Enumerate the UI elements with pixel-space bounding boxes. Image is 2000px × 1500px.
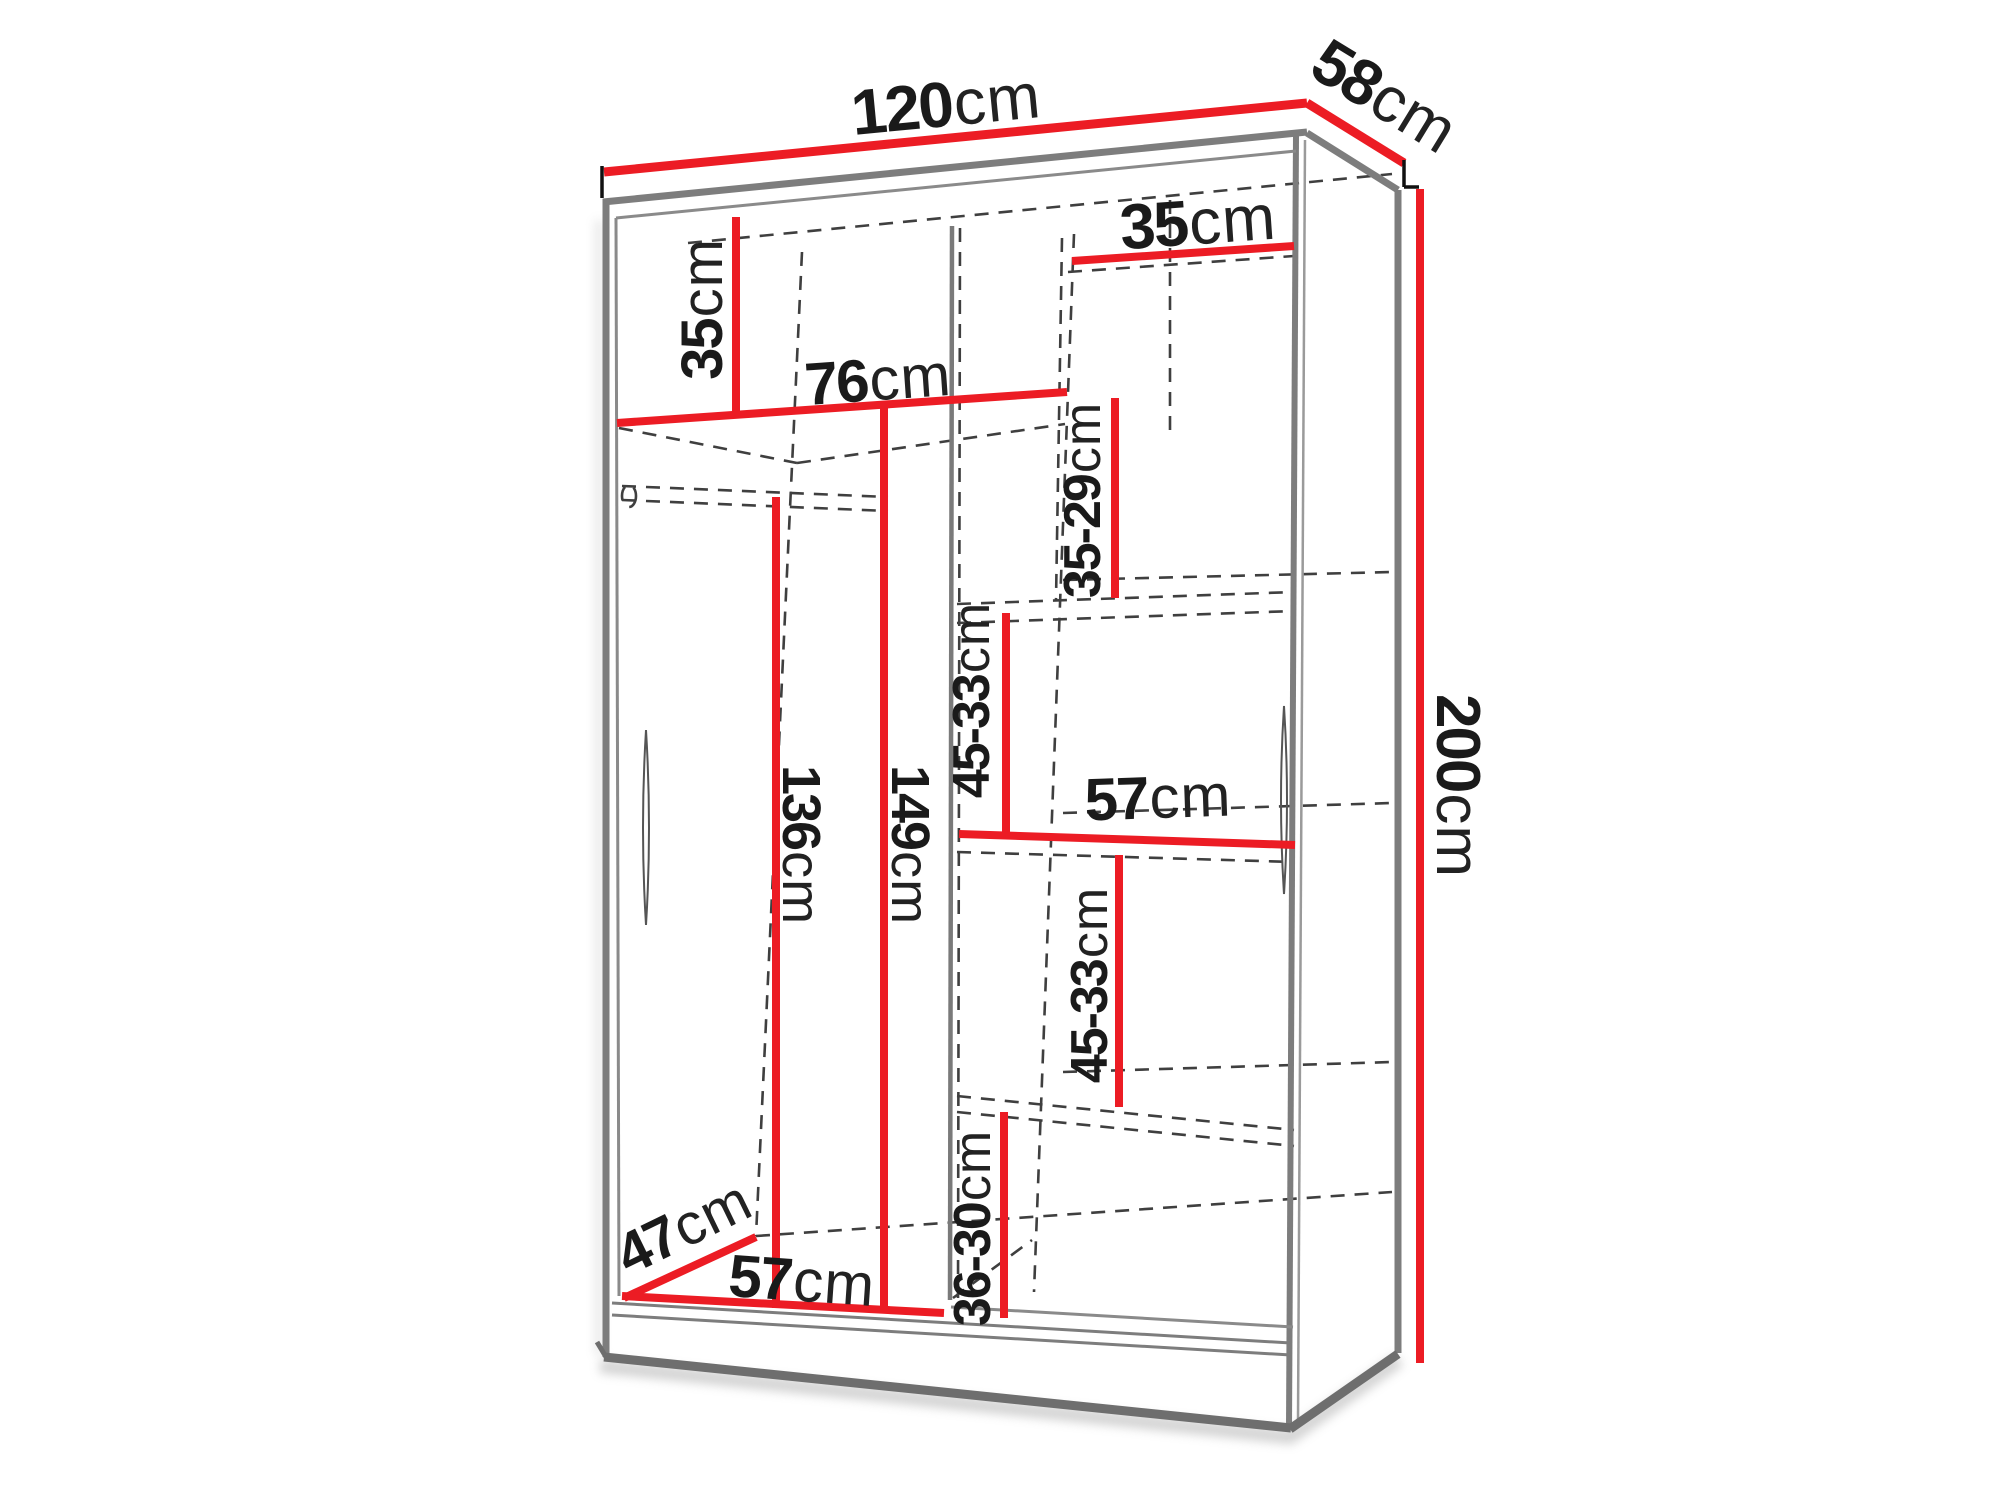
front-right-edge-inner xyxy=(1298,140,1305,1420)
shelf-600-front xyxy=(957,592,1294,604)
dim-label-gap-36-30: 36-30cm xyxy=(947,1130,999,1326)
dim-label-left-width: 76cm xyxy=(803,345,954,415)
left-door-handle xyxy=(643,730,649,925)
dim-label-top-left-height: 35cm xyxy=(674,238,732,380)
dim-label-bottom-width: 57cm xyxy=(727,1246,878,1316)
shelf-838-under xyxy=(957,852,1294,862)
front-right-edge xyxy=(1289,135,1296,1427)
front-bottom-edge xyxy=(604,1357,1291,1428)
dim-label-overall-height: 200cm xyxy=(1426,694,1488,878)
dim-label-gap-45-33-lower: 45-33cm xyxy=(1064,887,1116,1083)
dim-line-mid-shelf-width xyxy=(959,834,1295,845)
side-bottom-edge xyxy=(1290,1354,1398,1429)
dim-label-top-right-width: 35cm xyxy=(1118,185,1279,260)
hanging-rail-bracket xyxy=(622,485,636,507)
wardrobe-dimension-diagram: 120cm 58cm 200cm 35cm 76cm 35cm 35-29cm … xyxy=(0,0,2000,1500)
hanging-rail-front xyxy=(622,486,888,497)
dim-label-gap-35-29: 35-29cm xyxy=(1057,402,1109,598)
right-door-handle xyxy=(1281,706,1287,894)
dim-label-mid-shelf-width: 57cm xyxy=(1084,765,1233,830)
floor-back-edge xyxy=(756,1192,1392,1236)
interior-left-wall xyxy=(616,218,619,1296)
dim-label-overall-width: 120cm xyxy=(848,63,1043,145)
dim-label-left-height: 149cm xyxy=(883,765,937,925)
left-shelf-back-edge xyxy=(797,424,1065,463)
dim-label-hanging-height: 136cm xyxy=(774,765,828,925)
left-shelf-depth-edge xyxy=(619,428,797,463)
dim-label-gap-45-33-upper: 45-33cm xyxy=(946,602,998,798)
hanging-rail-back xyxy=(622,500,888,511)
